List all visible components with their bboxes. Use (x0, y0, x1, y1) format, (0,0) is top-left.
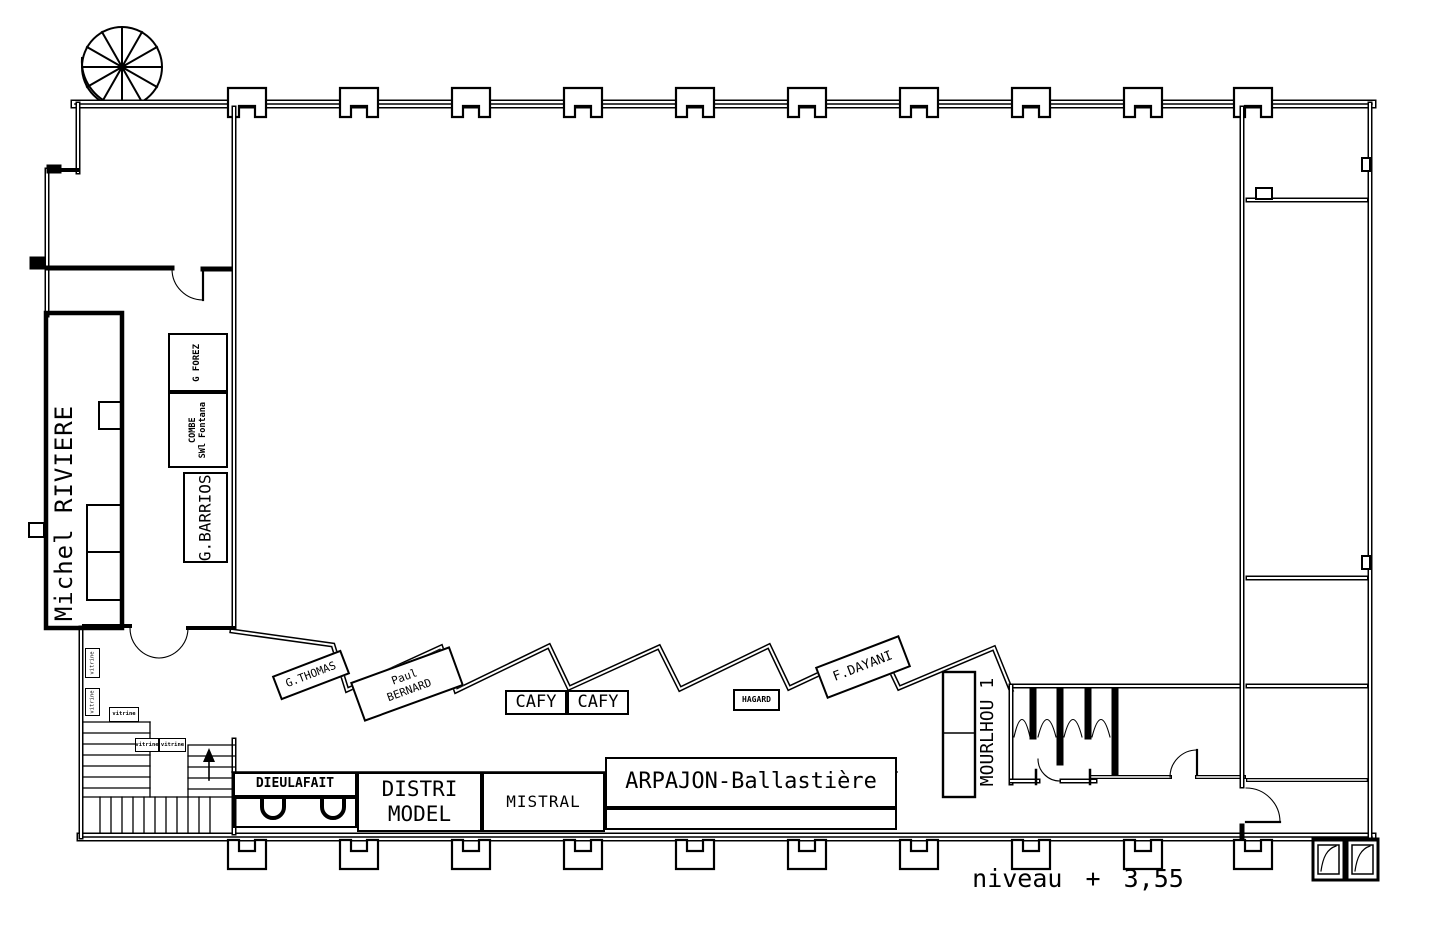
stand-hagard: HAGARD (733, 689, 780, 711)
floor-plan: Michel RIVIERE G FOREZ COMBESWl Fontana … (0, 0, 1432, 940)
stand-g-barrios: G.BARRIOS (183, 472, 228, 563)
double-door (84, 626, 234, 658)
elevators (1313, 839, 1378, 880)
vitrine-side-2: vitrine (85, 688, 100, 716)
stand-mistral: MISTRAL (482, 772, 605, 832)
stand-distri-model: DISTRIMODEL (357, 772, 482, 832)
level-note: niveau + 3,55 (963, 862, 1193, 896)
label-mourlhou: MOURLHOU 1 (976, 666, 1000, 798)
stand-arpajon: ARPAJON-Ballastière (605, 757, 897, 808)
mourlhou-shelving (943, 672, 975, 797)
dieulafait-sink-box (233, 797, 357, 828)
stand-g-forez: G FOREZ (168, 333, 228, 392)
stand-cafy-left: CAFY (505, 690, 567, 715)
arpajon-band (605, 808, 897, 830)
vitrine-1: vitrine (109, 707, 139, 722)
vitrine-3: vitrine (159, 738, 186, 752)
vitrine-2: vitrine (135, 738, 159, 752)
right-wing-walls (1242, 104, 1370, 839)
vitrine-side-1: vitrine (85, 648, 100, 678)
left-wing-partition-door (47, 268, 232, 300)
label-michel-riviere: Michel RIVIERE (47, 388, 81, 638)
spiral-staircase (82, 27, 162, 107)
stand-cafy-right: CAFY (567, 690, 629, 715)
stand-dieulafait: DIEULAFAIT (233, 772, 357, 797)
stand-combe: COMBESWl Fontana (168, 392, 228, 468)
wc-block (1011, 686, 1244, 784)
